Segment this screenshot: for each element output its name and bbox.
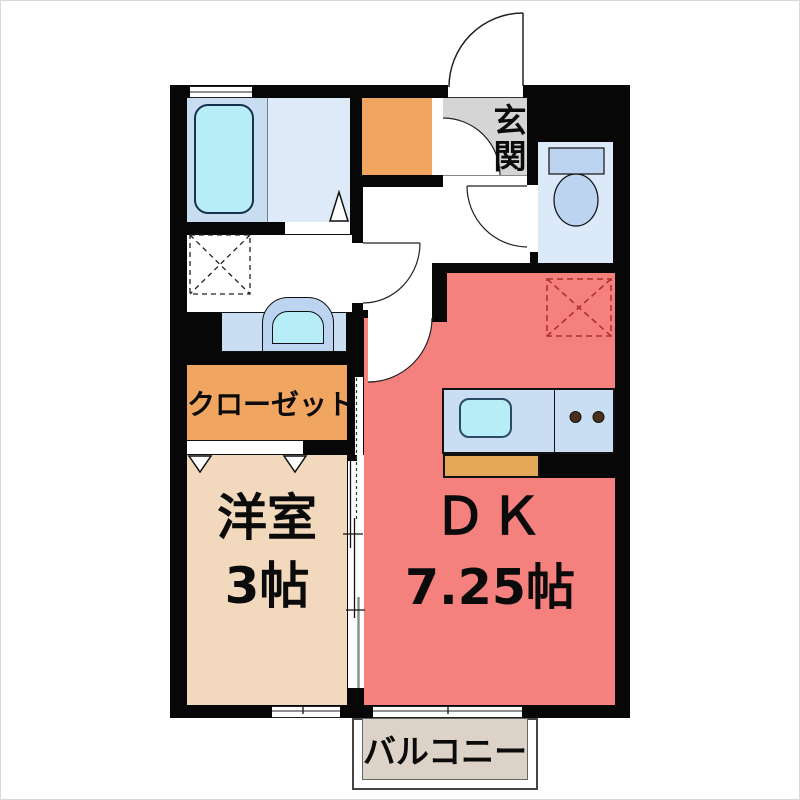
toilet-door-opening	[527, 185, 538, 252]
window-icon-bathroom	[190, 86, 252, 98]
washbasin-sink	[272, 311, 324, 344]
hallway-floor-lower	[363, 263, 432, 310]
closet-door-opening	[187, 440, 303, 455]
bathroom-floor-right	[267, 98, 350, 222]
western-room-name: 洋室	[187, 490, 347, 548]
western-room-label: 洋室 3帖	[187, 490, 347, 615]
shoe-cabinet-icon	[362, 98, 432, 175]
sliding-door-icon	[348, 455, 364, 688]
dk-size: 7.25帖	[385, 560, 595, 616]
kitchen-sink-icon	[459, 398, 512, 438]
window-icon-western	[272, 706, 340, 718]
shoe-cabinet-front	[432, 98, 443, 175]
kitchen-base-strip	[443, 454, 540, 478]
sliding-door-stub	[348, 455, 357, 461]
bathtub-icon	[194, 104, 254, 214]
toilet-room-floor	[538, 142, 613, 263]
entrance-label: 玄関	[486, 100, 524, 178]
western-room-size: 3帖	[187, 558, 347, 616]
kitchen-counter-divider	[554, 390, 555, 452]
dk-label: ＤＫ 7.25帖	[385, 488, 595, 616]
closet-label: クローゼット	[187, 389, 347, 421]
dk-door-opening	[368, 310, 433, 318]
sliding-door-pocket	[355, 377, 363, 455]
washroom-floor	[187, 235, 352, 312]
bathroom-door-opening	[285, 222, 350, 235]
balcony-label: バルコニー	[362, 733, 528, 771]
dk-name: ＤＫ	[385, 488, 595, 548]
door-swing-icon-entrance	[449, 13, 523, 87]
hallway-floor-upper	[363, 187, 530, 263]
entrance-door-opening	[448, 85, 523, 98]
floor-plan: 玄関 クローゼット 洋室 3帖 ＤＫ 7.25帖 バルコニー	[0, 0, 800, 800]
wall-block-hall-dk	[432, 263, 447, 322]
washroom-door-opening	[352, 243, 363, 303]
window-icon-dk	[373, 706, 522, 718]
wall-block-kitchen	[540, 454, 615, 478]
